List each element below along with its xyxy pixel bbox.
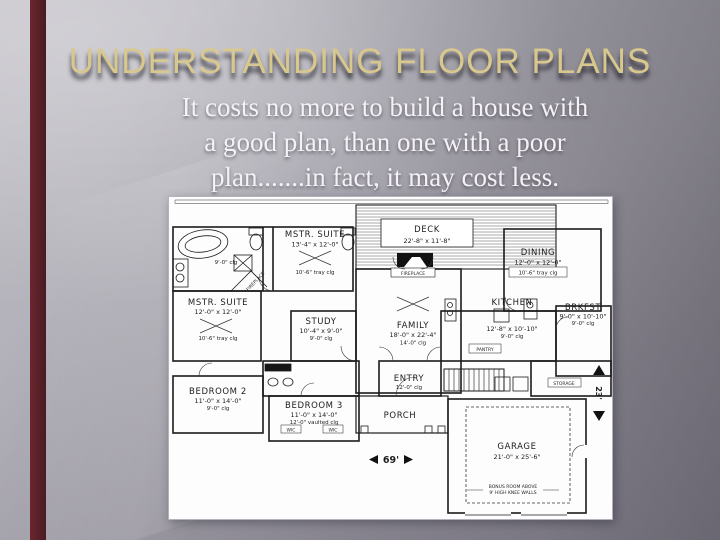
- quote-text: It costs no more to build a house with a…: [115, 90, 655, 195]
- room-dims-master-suite-upper: 13'-4" x 12'-0": [291, 241, 338, 249]
- room-clg-dining: 10'-6" tray clg: [518, 271, 557, 277]
- stairs: [449, 369, 499, 391]
- room-label-bedroom2: BEDROOM 2: [189, 387, 247, 397]
- room-label-deck: DECK: [414, 225, 440, 235]
- room-dims-master-suite-left: 12'-0" x 12'-0": [194, 308, 241, 316]
- room-dims-deck: 22'-8" x 11'-8": [403, 237, 450, 245]
- door-arcs: [199, 257, 584, 457]
- room-clg-bedroom2: 9'-0" clg: [207, 406, 230, 412]
- dimension-width-label: 69': [383, 455, 399, 466]
- quote-line: It costs no more to build a house with: [115, 90, 655, 125]
- room-dims-brkfst: 9'-0" x 10'-10": [559, 313, 606, 321]
- garage-details: [465, 407, 588, 515]
- pantry-label: PANTRY: [476, 347, 493, 353]
- room-dims-garage: 21'-0" x 25'-6": [493, 453, 540, 461]
- quote-line: a good plan, than one with a poor: [115, 125, 655, 160]
- room-label-master-suite-upper: MSTR. SUITE: [285, 230, 345, 240]
- dimension-height-label: 23': [594, 386, 603, 400]
- room-dims-dining: 12'-0" x 12'-0": [514, 259, 561, 267]
- room-clg-entry: 12'-0" clg: [396, 385, 422, 391]
- dimension-23: 23': [593, 365, 605, 421]
- presentation-slide: UNDERSTANDING FLOOR PLANS It costs no mo…: [0, 0, 720, 540]
- room-label-garage: GARAGE: [497, 442, 536, 452]
- storage-label: STORAGE: [553, 381, 575, 387]
- room-dims-study: 10'-4" x 9'-0": [300, 327, 343, 335]
- room-clg-master-suite-upper: 10'-6" tray clg: [295, 270, 334, 276]
- room-dims-family: 18'-0" x 22'-4": [389, 331, 436, 339]
- floor-plan-image: 69' 23' MSTR. SUITE 13'-4" x 12'-0" 10'-: [168, 196, 613, 520]
- room-dims-bedroom3: 11'-0" x 14'-0": [290, 411, 337, 419]
- room-clg-study: 9'-0" clg: [310, 336, 333, 342]
- room-label-family: FAMILY: [397, 321, 429, 331]
- room-label-master-suite-left: MSTR. SUITE: [188, 298, 248, 308]
- room-clg-bedroom3: 12'-0" vaulted clg: [290, 420, 339, 426]
- room-label-entry: ENTRY: [394, 374, 425, 384]
- room-clg-kitchen: 9'-0" clg: [501, 334, 524, 340]
- bonus-room-label-line1: BONUS ROOM ABOVE: [489, 484, 538, 490]
- room-clg-brkfst: 9'-0" clg: [572, 321, 595, 327]
- room-clg-master-suite-left: 10'-6" tray clg: [198, 336, 237, 342]
- floor-plan-drawing: 69' 23' MSTR. SUITE 13'-4" x 12'-0" 10'-: [169, 197, 612, 519]
- fireplace-label: FIREPLACE: [401, 271, 425, 277]
- room-dims-bedroom2: 11'-0" x 14'-0": [194, 397, 241, 405]
- wic-label: WIC: [287, 428, 296, 434]
- dimension-69: 69': [369, 455, 413, 466]
- room-label-porch: PORCH: [384, 411, 417, 421]
- room-label-brkfst: BRKFST: [565, 303, 601, 313]
- room-label-dining: DINING: [521, 248, 555, 258]
- bonus-room-label-line2: 9' HIGH KNEE WALLS: [489, 490, 536, 496]
- slide-title: UNDERSTANDING FLOOR PLANS: [0, 42, 720, 82]
- room-clg-family: 14'-0" clg: [400, 341, 426, 347]
- roof-lines: [175, 200, 608, 204]
- bath-ceiling-label: 9'-0" clg: [215, 260, 238, 266]
- quote-line: plan.......in fact, it may cost less.: [115, 160, 655, 195]
- room-label-study: STUDY: [305, 317, 336, 327]
- room-label-kitchen: KITCHEN: [491, 298, 532, 308]
- room-dims-kitchen: 12'-8" x 10'-10": [486, 325, 537, 333]
- wic-label: WIC: [329, 428, 338, 434]
- room-label-bedroom3: BEDROOM 3: [285, 401, 343, 411]
